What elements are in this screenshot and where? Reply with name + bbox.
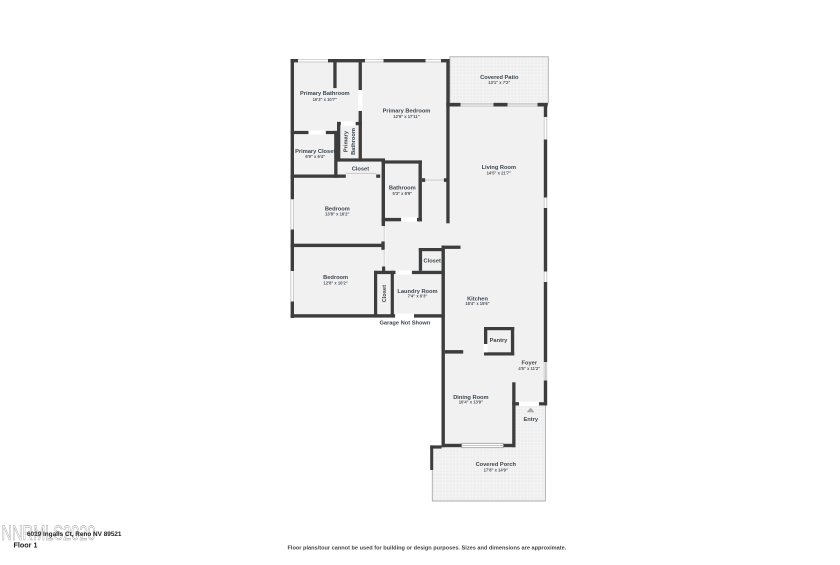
svg-text:6019 Ingalls Ct, Reno NV 89521: 6019 Ingalls Ct, Reno NV 89521 bbox=[27, 531, 122, 538]
svg-text:Floor plans/tour cannot be use: Floor plans/tour cannot be used for buil… bbox=[288, 545, 567, 551]
svg-text:10'3" x 10'7": 10'3" x 10'7" bbox=[313, 97, 337, 102]
svg-text:5'3" x 8'9": 5'3" x 8'9" bbox=[392, 191, 412, 196]
svg-text:13'1" x 7'2": 13'1" x 7'2" bbox=[488, 80, 510, 85]
svg-text:Closet: Closet bbox=[382, 285, 388, 302]
svg-text:12'8" x 10'2": 12'8" x 10'2" bbox=[323, 280, 347, 285]
svg-text:10'4" x 13'9": 10'4" x 13'9" bbox=[459, 400, 483, 405]
svg-text:Floor 1: Floor 1 bbox=[14, 540, 38, 549]
svg-text:4'5" x 11'2": 4'5" x 11'2" bbox=[518, 366, 540, 371]
svg-text:Closet: Closet bbox=[424, 259, 441, 265]
svg-text:Pantry: Pantry bbox=[490, 338, 509, 344]
svg-text:Bathroom: Bathroom bbox=[351, 128, 357, 155]
svg-text:6'9" x 6'4": 6'9" x 6'4" bbox=[305, 154, 325, 159]
svg-text:7'4" x 6'3": 7'4" x 6'3" bbox=[408, 293, 428, 298]
svg-text:17'8" x 14'9": 17'8" x 14'9" bbox=[484, 467, 508, 472]
svg-text:Primary: Primary bbox=[344, 130, 350, 152]
svg-text:14'5" x 21'7": 14'5" x 21'7" bbox=[487, 171, 511, 176]
svg-text:Garage Not Shown: Garage Not Shown bbox=[379, 321, 430, 327]
svg-text:13'8" x 16'2": 13'8" x 16'2" bbox=[325, 211, 349, 216]
svg-text:12'9" x 17'11": 12'9" x 17'11" bbox=[393, 114, 419, 119]
svg-text:Closet: Closet bbox=[352, 167, 369, 173]
svg-text:18'4" x 15'6": 18'4" x 15'6" bbox=[465, 301, 489, 306]
svg-text:Entry: Entry bbox=[524, 417, 539, 423]
